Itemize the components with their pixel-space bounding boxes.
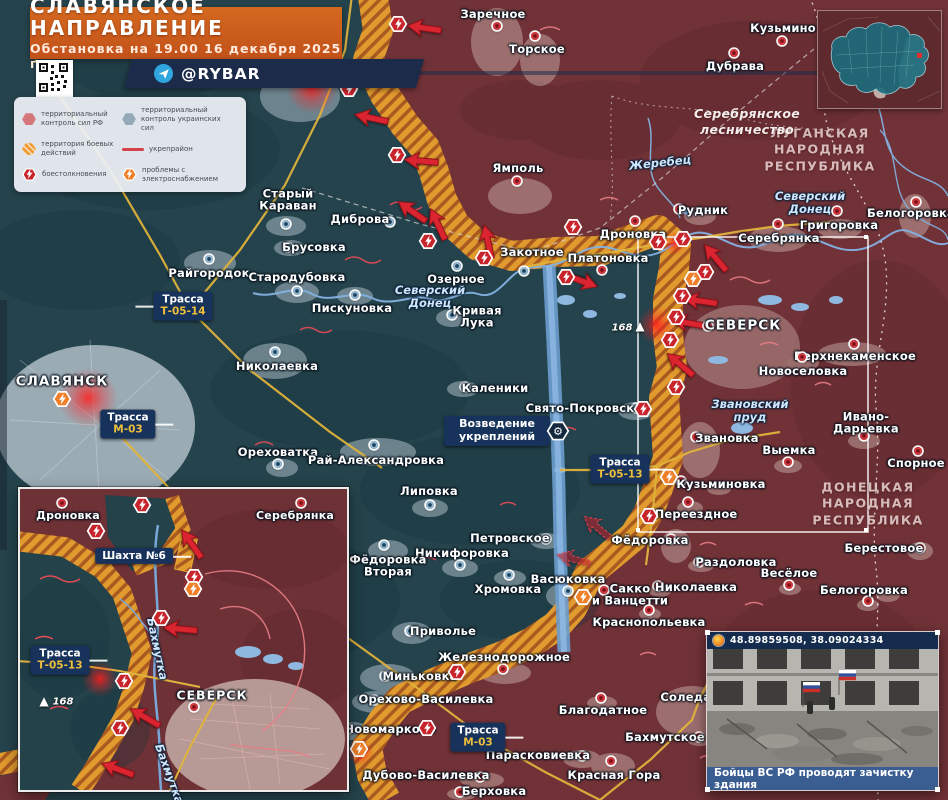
settlement-label: Ореховатка <box>238 446 318 458</box>
settlement-label: Орехово-Василевка <box>359 693 494 705</box>
clash-icon <box>564 219 583 236</box>
settlement-dot <box>784 458 792 466</box>
settlement-label: Кузьминовка <box>676 478 765 490</box>
settlement-dot <box>914 447 922 455</box>
road-badge: ТрассаТ-05-13 <box>30 646 89 675</box>
road-badge: ТрассаТ-05-14 <box>153 292 212 321</box>
settlement-label: Краснопольевка <box>592 616 705 628</box>
settlement-dot <box>798 353 806 361</box>
settlement-label: Кузьмино <box>750 22 816 34</box>
attack-arrow <box>122 699 167 739</box>
settlement-label: Райгородок <box>168 267 249 279</box>
settlement-dot <box>190 703 198 711</box>
channel-handle: @RYBAR <box>181 65 261 83</box>
power-outage-icon <box>53 391 72 408</box>
settlement-label: Диброва <box>331 213 390 225</box>
attack-arrow <box>404 15 445 44</box>
rf-control-icon <box>22 113 36 126</box>
settlement-dot <box>778 37 786 45</box>
settlement-dot <box>774 220 782 228</box>
clash-icon <box>22 168 37 181</box>
settlement-label: Рудник <box>678 204 728 216</box>
road-badge: ТрассаТ-05-13 <box>590 455 649 484</box>
settlement-dot <box>564 587 572 595</box>
settlement-label: Сакко и Ванцетти <box>592 583 668 608</box>
settlement-dot <box>598 266 606 274</box>
inset-map-seversk: БахмуткаБахмуткаДроновкаСеребрянкаСЕВЕРС… <box>18 487 349 792</box>
settlement-label: Николаевка <box>236 360 318 372</box>
road-badge: ТрассаМ-03 <box>450 723 505 752</box>
road-badge: ТрассаМ-03 <box>100 410 155 439</box>
settlement-dot <box>205 255 213 263</box>
settlement-label: Берестовое <box>845 542 924 554</box>
title-banner: СЛАВЯНСКОЕ НАПРАВЛЕНИЕ Обстановка на 19.… <box>30 7 342 59</box>
inset-labels-layer: БахмуткаБахмуткаДроновкаСеребрянкаСЕВЕРС… <box>20 489 347 790</box>
legend-item-combat-zone: территория боевых действий <box>22 140 116 158</box>
settlement-label: Стародубовка <box>249 271 346 283</box>
settlement-dot <box>505 571 513 579</box>
clash-icon <box>674 231 693 248</box>
settlement-label: Белогоровка <box>867 207 948 219</box>
river-label: Звановский пруд <box>711 398 788 424</box>
settlement-label: СЕВЕРСК <box>176 688 247 702</box>
settlement-dot <box>351 291 359 299</box>
settlement-label: Ямполь <box>493 162 544 174</box>
road-badge: Шахта №6 <box>95 548 173 564</box>
settlement-dot <box>912 198 920 206</box>
settlement-dot <box>645 606 653 614</box>
settlement-label: Петровское <box>470 532 550 544</box>
qr-code <box>36 60 73 97</box>
river-label: Бахмутка <box>152 742 186 800</box>
settlement-label: СЕВЕРСК <box>705 319 781 334</box>
settlement-label: Заречное <box>460 8 525 20</box>
settlement-dot <box>730 49 738 57</box>
power-outage-icon <box>574 589 593 606</box>
settlement-dot <box>531 32 539 40</box>
settlement-dot <box>631 217 639 225</box>
settlement-dot <box>456 561 464 569</box>
settlement-dot <box>293 287 301 295</box>
settlement-label: Спорное <box>887 457 945 469</box>
settlement-dot <box>58 499 66 507</box>
settlement-dot <box>597 694 605 702</box>
rybar-channel[interactable]: @RYBAR <box>128 59 420 88</box>
settlement-label: Бахмутское <box>625 731 705 743</box>
settlement-label: Весёлое <box>761 567 818 579</box>
settlement-label: Закотное <box>500 246 564 258</box>
settlement-label: Приволье <box>410 625 476 637</box>
photo-inset: 48.89859508, 38.09024334 <box>706 631 939 791</box>
direction-marker <box>917 53 922 58</box>
page-title: СЛАВЯНСКОЕ НАПРАВЛЕНИЕ <box>30 0 342 39</box>
settlement-dot <box>426 501 434 509</box>
clash-icon <box>133 497 152 514</box>
settlement-label: Пискуновка <box>312 302 393 314</box>
settlement-label: Фёдоровка Вторая <box>349 554 426 579</box>
settlement-dot <box>607 757 615 765</box>
settlement-label: Рай-Александровка <box>308 454 444 466</box>
legend-item-rf-control: территориальный контроль сил РФ <box>22 110 116 128</box>
photo-caption: Бойцы ВС РФ проводят зачистку здания <box>707 767 938 790</box>
settlement-label: Свято-Покровское <box>526 402 651 414</box>
power-outage-icon <box>350 741 369 758</box>
settlement-dot <box>282 220 290 228</box>
elevation-marker: ▲ <box>635 319 644 333</box>
settlement-label: Торское <box>509 43 565 55</box>
region-label: Серебрянское лесничество <box>694 106 800 139</box>
location-icon <box>713 635 724 646</box>
settlement-dot <box>297 499 305 507</box>
elevation-marker: ▲ <box>39 694 48 708</box>
settlement-label: Берховка <box>462 785 527 797</box>
settlement-label: Никифоровка <box>415 547 509 559</box>
attack-arrow <box>169 523 210 568</box>
settlement-label: Переездное <box>655 508 738 520</box>
settlement-label: Фёдоровка <box>611 534 688 546</box>
settlement-dot <box>380 541 388 549</box>
settlement-dot <box>493 22 501 30</box>
settlement-dot <box>520 267 528 275</box>
settlement-label: Новоселовка <box>759 365 848 377</box>
attack-arrow <box>95 753 139 789</box>
map-legend: территориальный контроль сил РФ территор… <box>14 97 246 192</box>
settlement-label: Григоровка <box>800 219 879 231</box>
river-label: Жеребец <box>628 153 691 172</box>
settlement-label: Кривая Лука <box>452 305 501 330</box>
settlement-dot <box>833 207 841 215</box>
settlement-label: Дубово-Василевка <box>362 769 489 781</box>
settlement-label: Железнодорожное <box>438 651 570 663</box>
elevation-value: 168 <box>53 697 74 708</box>
settlement-label: Платоновка <box>567 252 648 264</box>
ua-control-icon <box>122 113 136 126</box>
clash-icon <box>87 523 106 540</box>
settlement-label: Красная Гора <box>568 769 661 781</box>
power-outage-icon <box>122 168 137 181</box>
settlement-dot <box>864 597 872 605</box>
ukraine-minimap <box>817 10 942 109</box>
settlement-label: Выемка <box>762 444 815 456</box>
settlement-dot <box>499 665 507 673</box>
legend-item-clashes: боестолкновения <box>22 168 116 181</box>
attack-arrow <box>401 149 441 176</box>
clash-icon <box>115 673 134 690</box>
settlement-dot <box>453 262 461 270</box>
photo-coordinates: 48.89859508, 38.09024334 <box>730 635 884 646</box>
legend-item-ua-control: территориальный контроль украинских сил <box>122 106 226 132</box>
legend-item-fortified-area: укрепрайон <box>122 145 226 154</box>
settlement-label: Миньковка <box>382 670 457 682</box>
photo-image <box>707 649 938 767</box>
settlement-dot <box>513 177 521 185</box>
region-label: ДОНЕЦКАЯ НАРОДНАЯ РЕСПУБЛИКА <box>812 480 923 529</box>
elevation-value: 168 <box>612 323 633 334</box>
combat-zone-icon <box>22 143 36 156</box>
settlement-dot <box>370 441 378 449</box>
settlement-label: Звановка <box>695 432 759 444</box>
settlement-label: Старый Караван <box>259 188 317 213</box>
settlement-label: Ивано-Дарьевка <box>825 411 907 436</box>
telegram-icon <box>154 64 173 83</box>
settlement-dot <box>684 498 692 506</box>
settlement-dot <box>850 340 858 348</box>
settlement-label: СЛАВЯНСК <box>16 375 109 390</box>
settlement-label: Каленики <box>462 382 529 394</box>
settlement-dot <box>785 581 793 589</box>
situation-map: ЛУГАНСКАЯ НАРОДНАЯ РЕСПУБЛИКАДОНЕЦКАЯ НА… <box>0 0 948 800</box>
fortification-label: Возведение укреплений <box>444 416 550 446</box>
settlement-dot <box>274 460 282 468</box>
settlement-label: Благодатное <box>559 704 647 716</box>
settlement-dot <box>271 348 279 356</box>
fortified-line-icon <box>122 148 144 151</box>
settlement-label: Липовка <box>400 485 458 497</box>
settlement-label: Озерное <box>427 273 485 285</box>
photo-header: 48.89859508, 38.09024334 <box>707 632 938 649</box>
settlement-label: Брусовка <box>282 241 346 253</box>
legend-item-power-outage: проблемы с электроснабжением <box>122 166 226 184</box>
settlement-label: Верхнекаменское <box>794 350 916 362</box>
settlement-label: Белогоровка <box>820 584 908 596</box>
attack-arrow <box>350 104 392 135</box>
settlement-label: Дроновка <box>36 510 100 522</box>
settlement-label: Серебрянка <box>738 232 819 244</box>
settlement-label: Серебрянка <box>256 510 334 522</box>
